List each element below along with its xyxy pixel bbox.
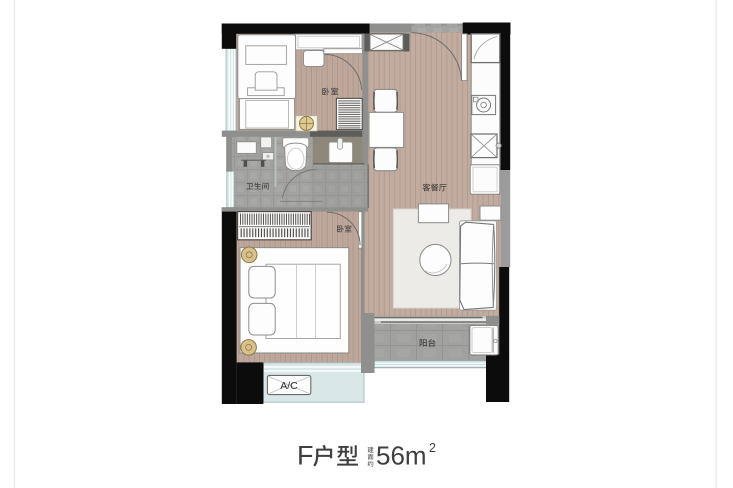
svg-text:2: 2 [429,441,436,455]
svg-text:F: F [297,441,314,471]
svg-text:56m: 56m [376,441,427,471]
svg-text:A/C: A/C [280,380,298,392]
